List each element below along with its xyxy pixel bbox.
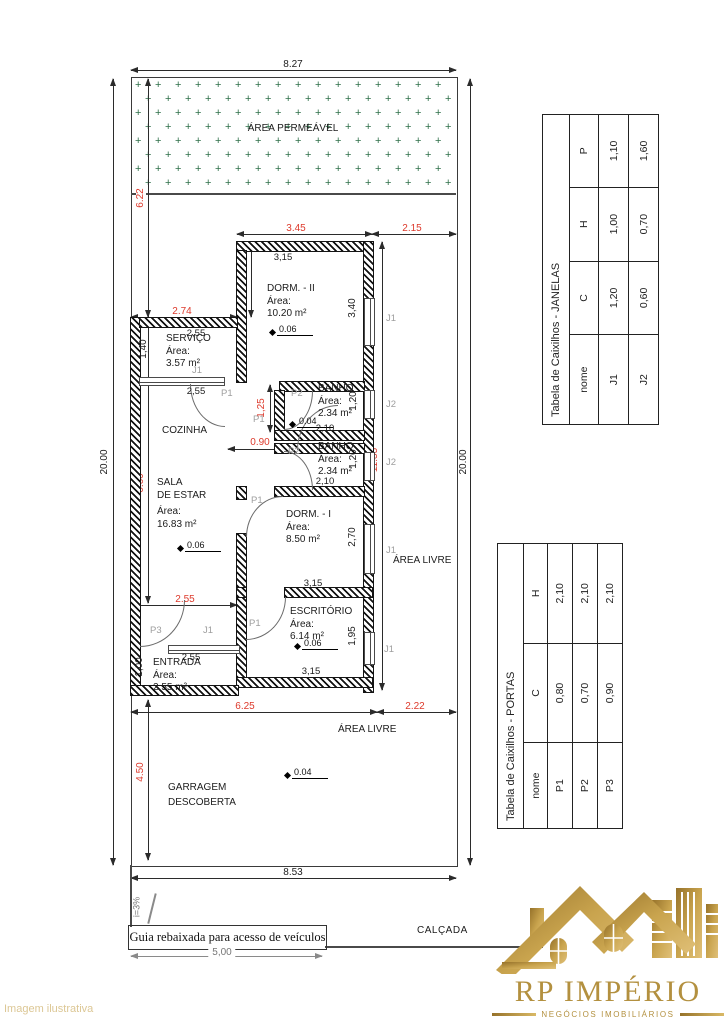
plus-glyph: + [225,122,231,133]
sidewalk-label: CALÇADA [417,926,468,936]
dim-255c: 2,55 [182,653,201,663]
plus-glyph: + [445,94,451,105]
cell: 1,00 [599,187,629,261]
plus-glyph: + [395,80,401,91]
plus-glyph: + [405,178,411,189]
label-j1: J1 [384,645,394,655]
plus-glyph: + [445,122,451,133]
plus-glyph: + [275,108,281,119]
window-j2-banho1 [364,390,375,419]
plus-glyph: + [255,136,261,147]
plus-glyph: + [215,136,221,147]
cell: 2,10 [598,544,623,644]
plus-glyph: + [155,164,161,175]
plus-glyph: + [365,94,371,105]
area-livre-label-1: ÁREA LIVRE [393,556,451,566]
plus-glyph: + [205,178,211,189]
dim-274: 2.74 [169,307,194,317]
cell: P2 [573,743,598,829]
plus-glyph: + [185,150,191,161]
plus-glyph: + [285,150,291,161]
plus-glyph: + [295,108,301,119]
dim-120a: 1,20 [349,391,359,410]
dim-line-205 [251,242,252,317]
col-header: nome [524,743,548,829]
plus-glyph: + [205,94,211,105]
diamond-icon [284,772,291,779]
elevation-marker-sala: 0.06 [178,541,221,552]
elevation-value: 0.06 [302,639,338,650]
cell: 1,20 [599,261,629,335]
dim-line-lot-top [131,70,456,71]
plus-glyph: + [245,150,251,161]
dim-line-660 [148,317,149,603]
dim-driveway: 5,00 [208,948,235,958]
label-j1: J1 [386,546,396,556]
plus-glyph: + [135,80,141,91]
plus-glyph: + [185,122,191,133]
plus-glyph: + [365,178,371,189]
dim-100: 1,00 [135,657,145,676]
plus-glyph: + [355,80,361,91]
logo-houses-icon [492,878,724,974]
col-header: C [570,261,599,335]
logo-brand-name: RP IMPÉRIO [492,977,724,1007]
plus-glyph: + [315,80,321,91]
plus-glyph: + [175,108,181,119]
dim-120b: 1,20 [349,449,359,468]
plus-glyph: + [175,80,181,91]
dim-315c: 3,15 [302,667,321,677]
plus-glyph: + [235,80,241,91]
dim-lot-bottom: 8.53 [279,868,306,878]
plus-glyph: + [375,164,381,175]
cell: 2,10 [548,544,573,644]
diamond-icon [269,329,276,336]
plus-glyph: + [195,164,201,175]
plus-glyph: + [285,94,291,105]
plus-glyph: + [415,108,421,119]
plus-glyph: + [275,164,281,175]
plus-glyph: + [225,150,231,161]
area-livre-label-2: ÁREA LIVRE [338,725,396,735]
plus-glyph: + [265,150,271,161]
plus-glyph: + [265,178,271,189]
plus-glyph: + [265,94,271,105]
area-label: Área: [318,396,342,407]
dim-line-1135 [382,242,383,690]
plus-glyph: + [435,108,441,119]
plus-glyph: + [215,164,221,175]
table-row: J1 1,20 1,00 1,10 [599,115,629,425]
room-name: DORM. - I [286,509,331,520]
plus-glyph: + [405,150,411,161]
plus-glyph: + [175,136,181,147]
col-header: C [524,643,548,743]
plus-glyph: + [385,178,391,189]
cell: 0,90 [598,643,623,743]
dim-line-lot-bottom [131,878,456,879]
dim-line-625 [131,712,377,713]
plus-glyph: + [135,136,141,147]
plus-glyph: + [275,136,281,147]
wall [237,678,372,687]
area-label: Área: [166,346,190,357]
plus-glyph: + [425,150,431,161]
label-p1: P1 [253,415,265,425]
plus-glyph: + [325,94,331,105]
label-j2: J2 [386,400,396,410]
dim-lot-left: 20.00 [100,445,110,478]
dim-line-215 [372,234,456,235]
col-header: H [570,187,599,261]
diamond-icon [294,643,301,650]
label-j2: J2 [386,458,396,468]
dim-line-lot-left [113,79,114,865]
area-label: Área: [286,522,310,533]
plus-glyph: + [385,94,391,105]
plus-glyph: + [365,150,371,161]
plus-glyph: + [355,136,361,147]
plus-glyph: + [295,80,301,91]
plus-glyph: + [245,178,251,189]
room-name: DESCOBERTA [168,797,236,808]
slope-slash-mark [147,893,156,923]
label-p1: P1 [221,389,233,399]
plus-glyph: + [235,164,241,175]
area-label: Área: [153,670,177,681]
wall [237,487,246,499]
dim-625: 6.25 [232,702,257,712]
col-header: nome [570,335,599,425]
plus-glyph: + [275,80,281,91]
plus-glyph: + [315,136,321,147]
plus-glyph: + [225,94,231,105]
cell: 0,80 [548,643,573,743]
dim-222: 2.22 [402,702,427,712]
plus-glyph: + [295,164,301,175]
plus-glyph: + [155,108,161,119]
dim-345: 3.45 [283,224,308,234]
plus-glyph: + [155,80,161,91]
dim-255a: 2,55 [187,329,206,339]
room-cozinha: COZINHA [162,425,207,438]
plus-glyph: + [215,108,221,119]
area-value: 8.50 m² [286,534,320,545]
plus-glyph: + [305,178,311,189]
cell: J1 [599,335,629,425]
label-p1: P1 [249,619,261,629]
dim-line-450 [148,700,149,860]
plus-glyph: + [385,122,391,133]
plus-glyph: + [435,164,441,175]
plus-glyph: + [425,94,431,105]
plus-glyph: + [325,178,331,189]
dim-340: 3,40 [348,298,358,317]
area-label: Área: [318,454,342,465]
dim-090: 0.90 [250,438,269,448]
table-janelas-title: Tabela de Caixilhos - JANELAS [543,115,570,425]
plus-glyph: + [385,150,391,161]
elevation-marker-escritorio: 0.06 [295,639,338,650]
dim-line-622 [148,79,149,317]
col-header: H [524,544,548,644]
plus-glyph: + [395,164,401,175]
cell: 2,10 [573,544,598,644]
plus-glyph: + [405,94,411,105]
plus-glyph: + [425,178,431,189]
dim-line-345 [237,234,372,235]
plus-glyph: + [255,108,261,119]
plus-glyph: + [405,122,411,133]
table-row: P3 0,90 2,10 [598,544,623,829]
room-dorm1: DORM. - IÁrea:8.50 m² [286,509,331,547]
plus-glyph: + [305,150,311,161]
wall [237,534,246,678]
driveway-guide-label: Guia rebaixada para acesso de veículos [129,930,325,945]
window-j2-banho2 [364,452,375,481]
dim-215: 2.15 [399,224,424,234]
plus-glyph: + [295,136,301,147]
label-p1: P1 [251,496,263,506]
dim-315a: 3,15 [274,253,293,263]
plus-glyph: + [235,136,241,147]
plus-glyph: + [345,150,351,161]
plus-glyph: + [345,94,351,105]
room-name: DORM. - II [267,283,315,294]
room-sala: SALADE ESTARÁrea:16.83 m² [157,477,206,531]
area-value: 10.20 m² [267,308,306,319]
plus-glyph: + [395,108,401,119]
dim-lot-top: 8.27 [279,60,306,70]
room-garagem: GARRAGEMDESCOBERTA [168,780,236,810]
table-janelas: Tabela de Caixilhos - JANELAS nome C H P… [542,114,659,425]
plus-glyph: + [335,80,341,91]
plus-glyph: + [415,136,421,147]
cell: P1 [548,743,573,829]
elevation-value: 0.04 [292,768,328,779]
table-portas: Tabela de Caixilhos - PORTAS nome C H P1… [497,543,623,829]
plus-glyph: + [165,122,171,133]
plus-glyph: + [225,178,231,189]
area-label: Área: [157,506,181,517]
plus-glyph: + [335,164,341,175]
plus-glyph: + [335,136,341,147]
table-row: P1 0,80 2,10 [548,544,573,829]
window-j1-dorm1 [364,524,375,574]
logo-bar-left [492,1013,536,1017]
plus-glyph: + [415,164,421,175]
dim-line-125 [270,385,271,432]
col-header: P [570,115,599,188]
elevation-marker-dorm2: 0.06 [270,325,313,336]
room-dorm2: DORM. - IIÁrea:10.20 m² [267,283,315,321]
area-value: 2.55 m² [153,682,187,693]
plus-glyph: + [415,80,421,91]
logo-bar-right [680,1013,724,1017]
plus-glyph: + [205,150,211,161]
cell: 1,60 [629,115,659,188]
plus-glyph: + [135,108,141,119]
table-portas-title: Tabela de Caixilhos - PORTAS [498,544,524,829]
plus-glyph: + [195,108,201,119]
plus-glyph: + [345,122,351,133]
label-j1: J1 [386,314,396,324]
plus-glyph: + [345,178,351,189]
elevation-marker-garagem: 0.04 [285,768,328,779]
window-j1-escritorio [364,632,375,665]
plus-glyph: + [355,108,361,119]
plus-glyph: + [375,136,381,147]
plus-glyph: + [205,122,211,133]
plus-glyph: + [285,178,291,189]
dim-622: 6.22 [136,188,146,207]
diamond-icon [177,545,184,552]
plus-glyph: + [195,80,201,91]
wall [237,588,246,597]
dim-210a: 2,10 [316,424,335,434]
plus-glyph: + [155,136,161,147]
plus-glyph: + [185,178,191,189]
plus-glyph: + [165,178,171,189]
dim-255b: 2,55 [187,387,206,397]
plus-glyph: + [445,178,451,189]
permeable-bottom-line [131,193,456,195]
diamond-icon [289,421,296,428]
area-label: Área: [290,619,314,630]
plus-glyph: + [445,150,451,161]
room-name: DE ESTAR [157,490,206,501]
wall [285,588,372,597]
logo-tagline: NEGÓCIOS IMOBILIÁRIOS [541,1010,674,1019]
cell: J2 [629,335,659,425]
plus-glyph: + [195,136,201,147]
table-row: P2 0,70 2,10 [573,544,598,829]
plus-glyph: + [325,150,331,161]
dim-270: 2,70 [348,527,358,546]
cell: 0,60 [629,261,659,335]
dim-315b: 3,15 [304,579,323,589]
plus-glyph: + [165,94,171,105]
window-j1-dorm2 [364,298,375,346]
room-name: COZINHA [162,425,207,436]
plus-glyph: + [315,108,321,119]
cell: 1,10 [599,115,629,188]
dim-195: 1,95 [348,626,358,645]
plus-glyph: + [235,108,241,119]
room-name: GARRAGEM [168,782,226,793]
plus-glyph: + [165,150,171,161]
plus-glyph: + [185,94,191,105]
cell: 0,70 [629,187,659,261]
plus-glyph: + [425,122,431,133]
label-p3: P3 [150,626,162,636]
cell: 0,70 [573,643,598,743]
plus-glyph: + [215,80,221,91]
label-p2: P2 [288,447,300,457]
curb-left-line [130,865,132,927]
plus-glyph: + [375,108,381,119]
wall [131,318,140,695]
table-row: J2 0,60 0,70 1,60 [629,115,659,425]
elevation-value: 0.06 [185,541,221,552]
dim-450: 4.50 [136,762,146,781]
plus-glyph: + [375,80,381,91]
wall [237,251,246,382]
plus-glyph: + [315,164,321,175]
plus-glyph: + [305,94,311,105]
dim-140: 1,40 [139,339,149,358]
label-p2: P2 [291,389,303,399]
elevation-value: 0.06 [277,325,313,336]
rp-imperio-logo: RP IMPÉRIO NEGÓCIOS IMOBILIÁRIOS [492,878,724,1024]
plus-glyph: + [395,136,401,147]
plus-glyph: + [355,164,361,175]
permeable-area-label: ÁREA PERMEÁVEL [248,124,339,134]
label-j1: J1 [192,366,202,376]
wall [140,318,237,327]
wall [237,242,373,251]
cell: P3 [598,743,623,829]
room-name: ESCRITÓRIO [290,606,352,617]
area-value: 16.83 m² [157,519,196,530]
floor-plan-page: ++++++++++++++++++++++++++++++++++++++++… [0,0,724,1024]
watermark-label: Imagem ilustrativa [4,1003,93,1015]
plus-glyph: + [255,80,261,91]
window-j1-entrada [168,645,240,654]
slope-label: i=3% [133,897,142,917]
plus-glyph: + [255,164,261,175]
dim-lot-right: 20.00 [459,445,469,478]
area-label: Área: [267,296,291,307]
plus-glyph: + [435,136,441,147]
plus-glyph: + [365,122,371,133]
plus-glyph: + [335,108,341,119]
plus-glyph: + [175,164,181,175]
room-name: SALA [157,477,183,488]
dim-line-lot-right [470,79,471,865]
permeable-pattern: ++++++++++++++++++++++++++++++++++++++++… [133,79,454,193]
plus-glyph: + [135,164,141,175]
plus-glyph: + [435,80,441,91]
label-j1: J1 [203,626,213,636]
dim-210b: 2,10 [316,477,335,487]
dim-line-222 [377,712,456,713]
plus-glyph: + [245,94,251,105]
